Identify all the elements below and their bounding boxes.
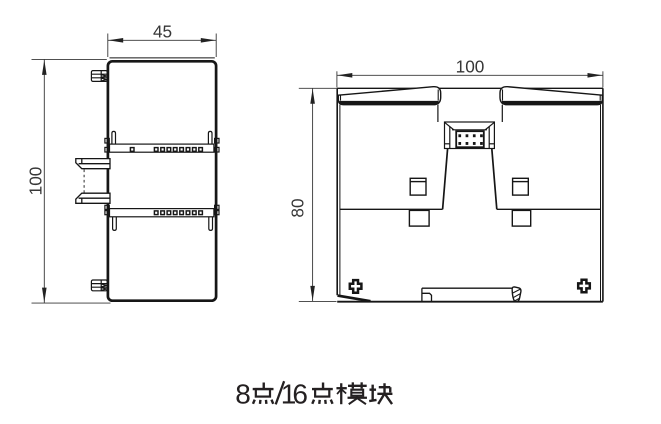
- svg-text:45: 45: [153, 22, 172, 42]
- svg-text:100: 100: [25, 167, 45, 196]
- svg-text:8: 8: [235, 379, 251, 410]
- svg-text:6: 6: [292, 379, 308, 410]
- svg-text:80: 80: [288, 198, 308, 217]
- svg-text:100: 100: [456, 57, 485, 77]
